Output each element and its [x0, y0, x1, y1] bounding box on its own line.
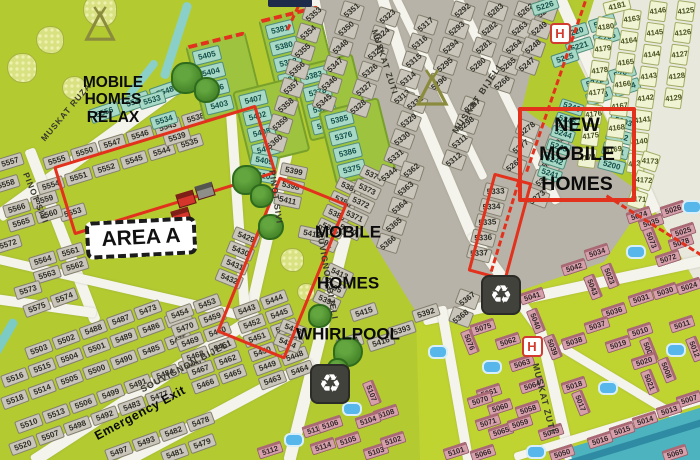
lot-5114: 5114 — [309, 436, 336, 455]
lot-5102: 5102 — [379, 430, 406, 449]
lot-4180: 4180 — [595, 16, 616, 38]
bush-icon — [36, 26, 64, 54]
pool-icon — [482, 360, 502, 374]
lot-4129: 4129 — [663, 87, 684, 109]
lot-single: 5102 — [379, 430, 406, 449]
lot-5354: 5354 — [296, 22, 322, 44]
lot-single: 5558 — [0, 174, 21, 194]
lot-5500: 5500 — [82, 359, 112, 380]
lot-single: 5106 — [316, 414, 343, 433]
lot-5485: 5485 — [136, 339, 166, 360]
pool-icon — [342, 402, 362, 416]
lot-5346: 5346 — [317, 73, 343, 95]
lot-4166: 4166 — [612, 73, 633, 95]
lot-4164: 4164 — [618, 30, 639, 52]
lot-5486: 5486 — [136, 317, 166, 338]
lot-single: 5573 — [13, 280, 43, 300]
lot-4128: 4128 — [666, 65, 687, 87]
lot-4142: 4142 — [635, 87, 656, 109]
lot-4163: 4163 — [621, 8, 642, 30]
water — [0, 317, 19, 360]
lot-5514: 5514 — [27, 379, 57, 400]
campground-site-map[interactable]: MOBILE HOMES RELAX MOBILE HOMES WHIRLPOO… — [0, 0, 700, 460]
lot-single: 5557 — [0, 152, 25, 172]
lot-4143: 4143 — [638, 65, 659, 87]
lot-4144: 4144 — [641, 44, 662, 66]
bush-icon — [7, 53, 37, 83]
lot-single: 5105 — [334, 430, 361, 449]
lot-5478: 5478 — [186, 411, 216, 432]
lot-5573: 5573 — [13, 280, 43, 300]
pool-icon — [284, 433, 304, 447]
lot-5505: 5505 — [55, 369, 85, 390]
tent-icon — [412, 68, 452, 108]
recycle-icon: ♻ — [481, 275, 521, 315]
label-new-mobile-homes: NEW MOBILE HOMES — [539, 111, 615, 199]
lot-5490: 5490 — [109, 349, 139, 370]
cut-off-sign — [268, 0, 312, 7]
lot-4178: 4178 — [589, 60, 610, 82]
pool-icon — [526, 445, 546, 459]
lot-single: 5112 — [256, 440, 283, 459]
lot-5348: 5348 — [328, 36, 354, 58]
pool-icon — [428, 345, 448, 359]
lot-5106: 5106 — [316, 414, 343, 433]
lot-single: 5572 — [0, 234, 23, 254]
recycle-icon: ♻ — [310, 364, 350, 404]
lot-5356: 5356 — [285, 59, 311, 81]
lot-4177: 4177 — [586, 81, 607, 103]
lot-5518: 5518 — [0, 389, 30, 410]
lot-5501: 5501 — [82, 337, 112, 358]
lot-5504: 5504 — [55, 347, 85, 368]
lot-5572: 5572 — [0, 234, 23, 254]
lot-5515: 5515 — [27, 357, 57, 378]
lot-4179: 4179 — [592, 38, 613, 60]
lot-5489: 5489 — [109, 327, 139, 348]
hydrant-icon: H — [550, 23, 571, 44]
lot-5557: 5557 — [0, 152, 25, 172]
lot-5347: 5347 — [323, 55, 349, 77]
lot-5358: 5358 — [274, 95, 300, 117]
pool-icon — [666, 343, 686, 357]
lot-single: 5114 — [309, 436, 336, 455]
hydrant-icon: H — [522, 336, 543, 357]
pool-icon — [626, 245, 646, 259]
lot-5359: 5359 — [268, 113, 294, 135]
lot-4165: 4165 — [615, 52, 636, 74]
lot-5516: 5516 — [0, 367, 30, 388]
tent-icon — [81, 5, 119, 43]
label-mobile-homes-relax: MOBILE HOMES RELAX — [83, 74, 143, 126]
lot-5112: 5112 — [256, 440, 283, 459]
lot-single: 5107 — [362, 379, 382, 407]
lot-4145: 4145 — [644, 22, 665, 44]
pool-icon — [598, 381, 618, 395]
lot-4127: 4127 — [669, 44, 690, 66]
lot-5506: 5506 — [69, 393, 99, 414]
lot-5479: 5479 — [187, 433, 217, 454]
lot-5355: 5355 — [290, 40, 316, 62]
lot-5107: 5107 — [362, 379, 382, 407]
lot-5357: 5357 — [279, 77, 305, 99]
lot-4146: 4146 — [647, 0, 668, 22]
lot-5105: 5105 — [334, 430, 361, 449]
pool-icon — [682, 200, 700, 214]
lot-5510: 5510 — [14, 413, 44, 434]
lot-5513: 5513 — [41, 403, 71, 424]
lot-5558: 5558 — [0, 174, 21, 194]
lot-4126: 4126 — [672, 22, 693, 44]
lot-5350: 5350 — [334, 18, 360, 40]
label-mobile-homes-whirlpool: MOBILE HOMES WHIRLPOOL — [296, 207, 400, 360]
lot-4125: 4125 — [675, 0, 696, 22]
area-a-badge: AREA A — [85, 216, 198, 260]
